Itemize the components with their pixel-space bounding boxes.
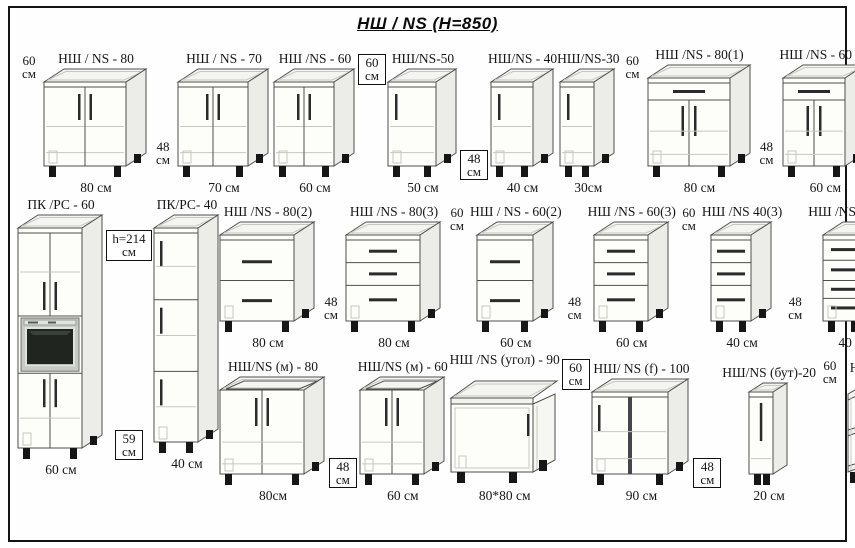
dimension-label: 48 см bbox=[782, 295, 808, 322]
cabinet-drawing bbox=[781, 63, 855, 180]
open-shelf-drawing bbox=[844, 376, 855, 488]
cabinet-size-label: 90 см bbox=[626, 489, 657, 504]
dimension-label: 48 см bbox=[329, 458, 357, 489]
cabinet-row-bottom: НШ/NS (м) - 8080см48 смНШ/NS (м) - 6060 … bbox=[218, 351, 855, 504]
lower-section: ПК /РС - 6060 смh=214 см59 смПК/РС- 4040… bbox=[16, 198, 841, 504]
cabinet-drawing bbox=[747, 381, 791, 488]
cabinet-size-label: 40 см bbox=[507, 181, 538, 196]
cabinet-drawing bbox=[592, 220, 672, 335]
dimension-label: 48 см bbox=[460, 150, 488, 181]
cabinet-unit: НШ /NS - 6060 см bbox=[272, 52, 358, 196]
dimension-label: 60 см bbox=[620, 54, 646, 81]
cabinet-drawing bbox=[558, 67, 618, 180]
cabinet-label: НШ/NS (бут)-20 bbox=[722, 366, 816, 381]
cabinet-unit: НШ/NS (м) - 6060 см bbox=[358, 360, 448, 504]
title-area: НШ / NS (H=850) bbox=[10, 14, 845, 34]
cabinet-size-label: 20 см bbox=[753, 489, 784, 504]
cabinet-unit: НШ /NS - 80(1)80 см bbox=[646, 48, 754, 196]
cabinet-unit: НШ/NS-3030см bbox=[557, 52, 619, 196]
cabinet-drawing bbox=[646, 63, 754, 180]
cabinet-unit: НШ/ NS (f) - 10090 см bbox=[590, 362, 692, 504]
cabinet-drawing bbox=[358, 375, 448, 488]
cabinet-size-label: 50 см bbox=[407, 181, 438, 196]
cabinet-size-label: 60 см bbox=[500, 336, 531, 351]
dimension-label: 48 см bbox=[562, 295, 588, 322]
cabinet-size-label: 70 см bbox=[208, 181, 239, 196]
cabinet-size-label: 80см bbox=[259, 489, 287, 504]
cabinet-drawing bbox=[709, 220, 775, 335]
dimension-label: 59 см bbox=[115, 430, 143, 461]
page-frame: НШ / NS (H=850) 60 смНШ / NS - 8080 см48… bbox=[8, 6, 847, 542]
cabinet-label: НШ/NS - 40 bbox=[488, 52, 557, 67]
cabinet-label: НШ /NS 40(3) bbox=[702, 205, 782, 220]
cabinet-unit: НШ / NS - 8080 см bbox=[42, 52, 150, 196]
cabinet-size-label: 40 см bbox=[838, 336, 855, 351]
cabinet-size-label: 60 см bbox=[45, 463, 76, 478]
cabinet-unit: НШ / NS - 7070 см bbox=[176, 52, 272, 196]
cabinet-unit: НШ /NS - 60 (1)60 см bbox=[780, 48, 855, 196]
corner-cabinet-drawing bbox=[449, 368, 561, 488]
cabinet-drawing bbox=[218, 375, 328, 488]
right-block: НШ /NS - 80(2)80 см48 смНШ /NS - 80(3)80… bbox=[218, 198, 855, 504]
dimension-label: 60 см bbox=[358, 54, 386, 85]
cabinet-size-label: 80 см bbox=[252, 336, 283, 351]
cabinet-label: НШ/NS-30 bbox=[557, 52, 619, 67]
cabinet-label: НШ / NS - 70 bbox=[186, 52, 262, 67]
cabinet-unit: ПК /РС - 6060 см bbox=[16, 198, 106, 478]
dimension-label: 60 см bbox=[676, 206, 702, 233]
cabinet-drawing bbox=[16, 213, 106, 462]
cabinet-unit: НШ /NS 40(3)40 см bbox=[702, 205, 782, 351]
cabinet-label: НШ/ NS (f) - 100 bbox=[593, 362, 689, 377]
cabinet-size-label: 40 см bbox=[726, 336, 757, 351]
cabinet-label: НУ - 30 bbox=[850, 361, 855, 376]
cabinet-unit: НШ /NS - 60(3)60 см bbox=[588, 205, 676, 351]
cabinet-drawing bbox=[272, 67, 358, 180]
cabinet-size-label: 60 см bbox=[299, 181, 330, 196]
cabinet-drawing bbox=[152, 213, 222, 456]
cabinet-label: НШ /NS - 60 bbox=[279, 52, 352, 67]
cabinet-drawing bbox=[344, 220, 444, 335]
cabinet-size-label: 80 см bbox=[80, 181, 111, 196]
cabinet-size-label: 30см bbox=[574, 181, 602, 196]
tall-dimension-column: h=214 см59 см bbox=[106, 198, 152, 504]
cabinet-label: НШ / NS - 60(2) bbox=[470, 205, 562, 220]
cabinet-drawing bbox=[386, 67, 460, 180]
cabinet-size-label: 80 см bbox=[378, 336, 409, 351]
cabinet-label: НШ /NS - 80(3) bbox=[350, 205, 438, 220]
dimension-label: 60 см bbox=[562, 359, 590, 390]
cabinet-drawing bbox=[218, 220, 318, 335]
cabinet-drawing bbox=[821, 220, 855, 335]
cabinet-drawing bbox=[42, 67, 150, 180]
cabinet-label: ПК/РС- 40 bbox=[157, 198, 218, 213]
cabinet-unit: НШ/NS-5050 см bbox=[386, 52, 460, 196]
cabinet-size-label: 80 см bbox=[684, 181, 715, 196]
cabinet-label: НШ /NS - 40 (х) bbox=[808, 205, 855, 220]
cabinet-unit: НШ /NS (угол) - 9080*80 см bbox=[449, 353, 561, 504]
dimension-label: 60 см bbox=[444, 206, 470, 233]
cabinet-label: НШ/NS (м) - 80 bbox=[228, 360, 318, 375]
dimension-label: 48 см bbox=[150, 140, 176, 167]
cabinet-drawing bbox=[590, 377, 692, 488]
cabinet-unit: НШ/NS (м) - 8080см bbox=[218, 360, 328, 504]
dimension-label: 60 см bbox=[817, 359, 843, 386]
dimension-label: 48 см bbox=[318, 295, 344, 322]
cabinet-drawing bbox=[475, 220, 557, 335]
cabinet-label: НШ /NS - 60(3) bbox=[588, 205, 676, 220]
page-title: НШ / NS (H=850) bbox=[357, 14, 498, 33]
cabinet-label: НШ / NS - 80 bbox=[58, 52, 134, 67]
cabinet-size-label: 40 см bbox=[171, 457, 202, 472]
dimension-label: 48 см bbox=[754, 140, 780, 167]
cabinet-label: НШ/NS (м) - 60 bbox=[358, 360, 448, 375]
cabinet-unit: НШ /NS - 40 (х)40 см bbox=[808, 205, 855, 351]
cabinet-drawing bbox=[176, 67, 272, 180]
cabinet-label: ПК /РС - 60 bbox=[27, 198, 94, 213]
cabinet-size-label: 60 см bbox=[616, 336, 647, 351]
cabinet-label: НШ /NS (угол) - 90 bbox=[450, 353, 560, 368]
dimension-label: 48 см bbox=[693, 458, 721, 489]
cabinet-drawing bbox=[489, 67, 557, 180]
cabinet-unit: НШ / NS - 60(2)60 см bbox=[470, 205, 562, 351]
cabinet-unit: НШ/NS (бут)-2020 см bbox=[722, 366, 816, 504]
cabinet-row-middle: НШ /NS - 80(2)80 см48 смНШ /NS - 80(3)80… bbox=[218, 198, 855, 351]
cabinet-row-top: 60 смНШ / NS - 8080 см48 смНШ / NS - 707… bbox=[16, 46, 839, 196]
dimension-label: h=214 см bbox=[106, 230, 152, 261]
cabinet-unit: НУ - 3030 см bbox=[844, 361, 855, 504]
cabinet-label: НШ /NS - 80(1) bbox=[655, 48, 743, 63]
cabinet-unit: НШ /NS - 80(3)80 см bbox=[344, 205, 444, 351]
cabinet-unit: ПК/РС- 4040 см bbox=[152, 198, 222, 472]
cabinet-size-label: 60 см bbox=[810, 181, 841, 196]
dimension-label: 60 см bbox=[16, 54, 42, 81]
cabinet-unit: НШ/NS - 4040 см bbox=[488, 52, 557, 196]
cabinet-label: НШ /NS - 60 (1) bbox=[780, 48, 855, 63]
oven-drawing bbox=[21, 318, 79, 371]
tall-cabinet-block: ПК /РС - 6060 смh=214 см59 смПК/РС- 4040… bbox=[16, 198, 218, 504]
cabinet-label: НШ /NS - 80(2) bbox=[224, 205, 312, 220]
cabinet-unit: НШ /NS - 80(2)80 см bbox=[218, 205, 318, 351]
cabinet-label: НШ/NS-50 bbox=[392, 52, 454, 67]
cabinet-size-label: 80*80 см bbox=[479, 489, 531, 504]
cabinet-size-label: 60 см bbox=[387, 489, 418, 504]
